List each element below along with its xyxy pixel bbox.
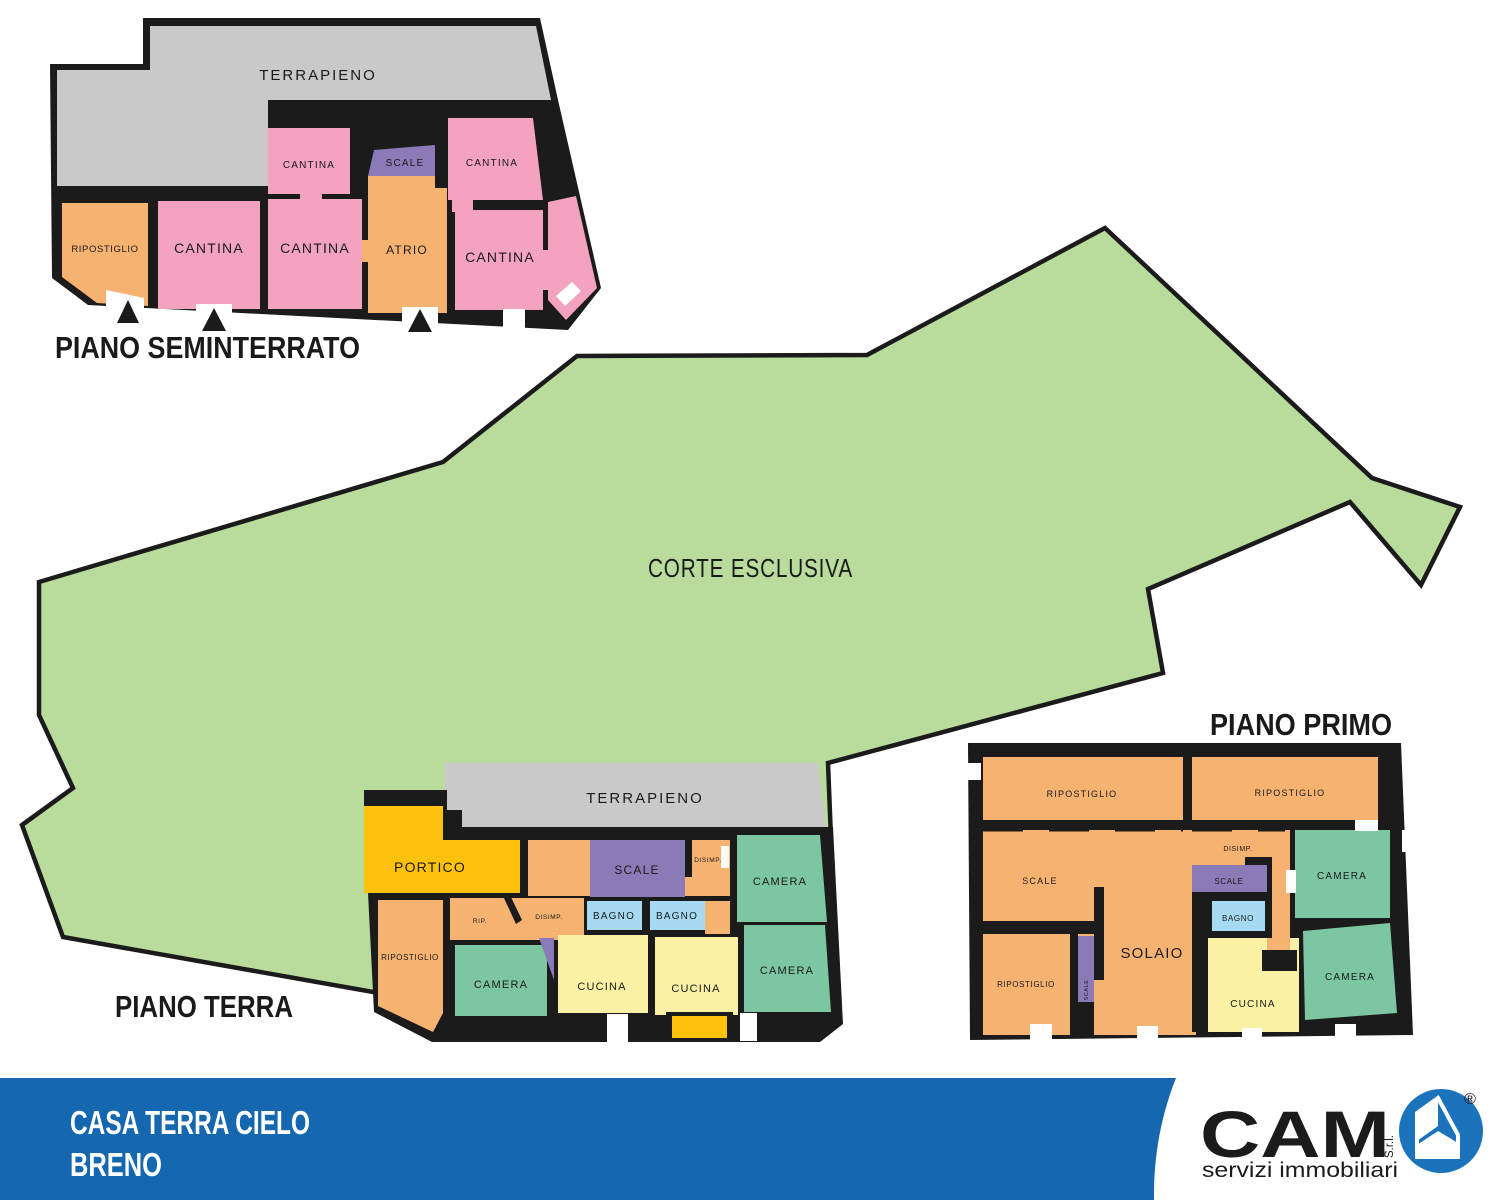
floor-title-seminterrato: PIANO SEMINTERRATO bbox=[55, 330, 360, 365]
logo-suffix-text: S.r.l. bbox=[1384, 1135, 1396, 1158]
door-gap bbox=[1030, 1024, 1052, 1050]
room-label-camera-tr: CAMERA bbox=[753, 876, 807, 888]
room-label-cantina-small: CANTINA bbox=[283, 160, 335, 171]
room-label-portico: PORTICO bbox=[394, 859, 466, 875]
floor-title-terra: PIANO TERRA bbox=[115, 989, 293, 1024]
room-label-ripostiglio-bl: RIPOSTIGLIO bbox=[997, 980, 1055, 989]
balcony bbox=[672, 1016, 727, 1038]
door-opening bbox=[300, 190, 322, 201]
room-label-cucina-primo: CUCINA bbox=[1230, 999, 1276, 1010]
banner-line1: CASA TERRA CIELO bbox=[70, 1104, 310, 1141]
wall bbox=[983, 921, 1094, 934]
floorplan-page: CORTE ESCLUSIVA TERRAPIENO CANTINA CANTI… bbox=[0, 0, 1500, 1200]
door-gap bbox=[1335, 1024, 1356, 1048]
room-label-ripostiglio: RIPOSTIGLIO bbox=[71, 244, 138, 255]
room-label-atrio: ATRIO bbox=[386, 243, 428, 257]
door-gap bbox=[968, 763, 981, 780]
logo-tagline: servizi immobiliari bbox=[1202, 1158, 1398, 1182]
corte-esclusiva-label: CORTE ESCLUSIVA bbox=[648, 553, 853, 583]
wall bbox=[1267, 865, 1272, 901]
room-label-scale-left: SCALE bbox=[1022, 876, 1058, 886]
room-label-disimp: DISIMP. bbox=[535, 914, 563, 921]
room-label-ripostiglio-tl: RIPOSTIGLIO bbox=[1047, 789, 1118, 799]
room-label-cantina-2: CANTINA bbox=[280, 240, 350, 256]
room-label-camera-br-primo: CAMERA bbox=[1325, 972, 1375, 983]
room-label-cantina-br: CANTINA bbox=[465, 249, 535, 265]
room-label-disimp-top: DISIMP. bbox=[694, 857, 722, 864]
door-gap bbox=[1137, 1026, 1158, 1050]
room-label-cantina-1: CANTINA bbox=[174, 240, 244, 256]
door-gap bbox=[607, 1014, 628, 1044]
room-label-terrapieno-terra: TERRAPIENO bbox=[586, 790, 704, 807]
room-label-scale-small: SCALE bbox=[1084, 979, 1090, 1000]
door-gap bbox=[721, 846, 729, 868]
room-cucina-1 bbox=[558, 935, 648, 1013]
room-label-solaio: SOLAIO bbox=[1120, 945, 1183, 962]
wall bbox=[1078, 1002, 1094, 1035]
wall bbox=[1192, 892, 1272, 901]
door-opening bbox=[541, 250, 550, 290]
door-gap bbox=[1402, 830, 1419, 852]
door-gap bbox=[1286, 870, 1296, 893]
registered-mark-icon: ® bbox=[1464, 1091, 1476, 1108]
room-label-disimp-primo: DISIMP. bbox=[1223, 846, 1252, 853]
door-gap bbox=[1242, 1028, 1262, 1052]
door-gap bbox=[740, 1013, 757, 1041]
door-opening bbox=[452, 198, 473, 212]
room-label-ripostiglio-tr: RIPOSTIGLIO bbox=[1255, 788, 1326, 798]
room-label-bagno-1: BAGNO bbox=[593, 911, 635, 922]
room-cucina-2 bbox=[655, 937, 738, 1015]
piano-primo-plan: RIPOSTIGLIO RIPOSTIGLIO SCALE DISIMP. SC… bbox=[968, 707, 1419, 1052]
room-label-ripostiglio-terra: RIPOSTIGLIO bbox=[381, 953, 439, 962]
room-label-scale-mid: SCALE bbox=[1214, 877, 1243, 886]
room-label-camera-bl: CAMERA bbox=[474, 979, 528, 991]
room-label-cucina-1: CUCINA bbox=[577, 981, 626, 993]
floor-title-primo: PIANO PRIMO bbox=[1210, 707, 1392, 742]
room-label-camera-br: CAMERA bbox=[760, 965, 814, 977]
door-gap bbox=[503, 309, 525, 340]
banner: CASA TERRA CIELO BRENO bbox=[0, 1078, 1176, 1200]
banner-line2: BRENO bbox=[70, 1146, 162, 1183]
door-opening bbox=[362, 240, 368, 262]
room-label-scale: SCALE bbox=[386, 158, 425, 169]
room-label-scale-terra: SCALE bbox=[614, 863, 659, 877]
room-label-terrapieno: TERRAPIENO bbox=[259, 67, 377, 84]
wall bbox=[1183, 743, 1192, 830]
hall-passage bbox=[705, 901, 730, 934]
room-label-cantina-tr: CANTINA bbox=[466, 158, 518, 169]
floorplan-canvas: CORTE ESCLUSIVA TERRAPIENO CANTINA CANTI… bbox=[0, 0, 1500, 1200]
wall bbox=[1192, 931, 1265, 938]
wall bbox=[1262, 950, 1297, 971]
room-label-cucina-2: CUCINA bbox=[671, 983, 720, 995]
room-label-camera-tr-primo: CAMERA bbox=[1317, 871, 1367, 882]
wall bbox=[1192, 938, 1208, 1032]
piano-seminterrato-plan: TERRAPIENO CANTINA CANTINA SCALE RIPOSTI… bbox=[50, 18, 601, 365]
wall bbox=[1094, 887, 1104, 980]
wall bbox=[1265, 898, 1272, 938]
wall-column bbox=[447, 810, 462, 840]
room-label-bagno-2: BAGNO bbox=[656, 911, 698, 922]
door-gap bbox=[1355, 820, 1378, 831]
wall bbox=[1192, 901, 1212, 931]
room-label-rip: RIP. bbox=[473, 918, 487, 925]
cam-logo: CAM S.r.l. ® servizi immobiliari bbox=[1200, 1089, 1483, 1182]
wall bbox=[1070, 934, 1078, 1035]
room-label-bagno-primo: BAGNO bbox=[1222, 914, 1254, 923]
wall bbox=[685, 840, 692, 877]
